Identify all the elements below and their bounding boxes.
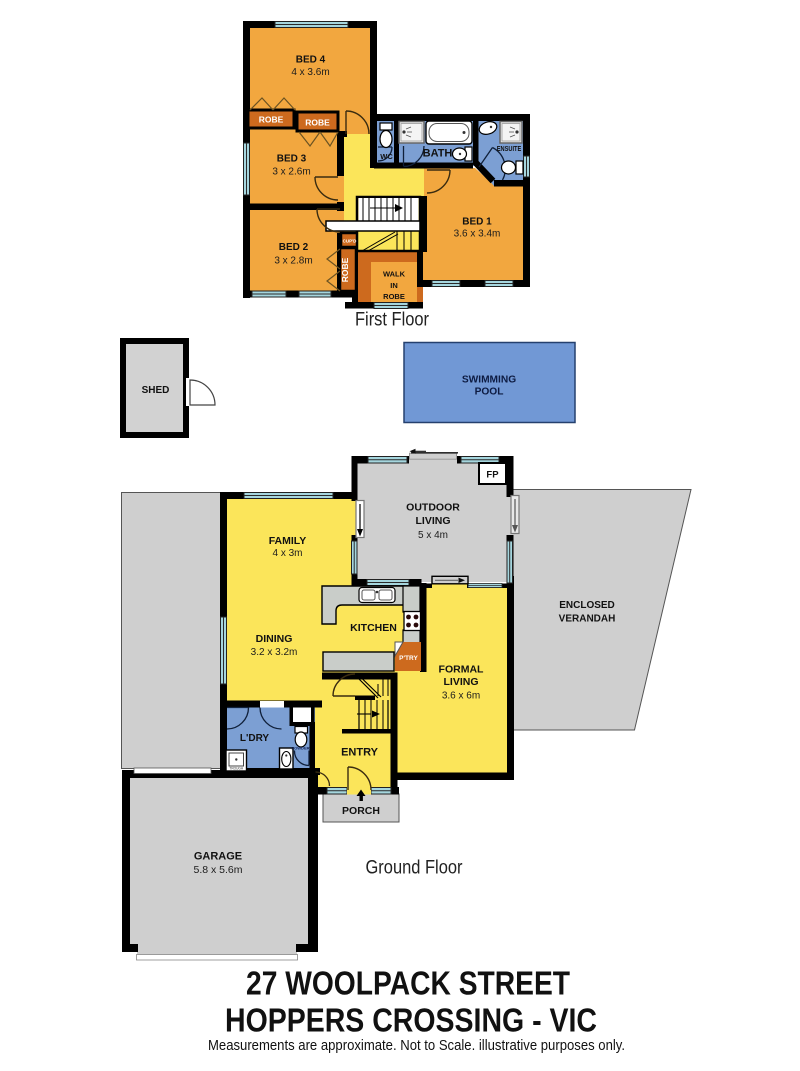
svg-text:ENTRY: ENTRY: [341, 747, 379, 759]
svg-text:FORMAL: FORMAL: [439, 664, 484, 676]
svg-text:BED 2: BED 2: [279, 242, 309, 253]
svg-text:ROBE: ROBE: [383, 292, 405, 301]
svg-text:ENSUITE: ENSUITE: [497, 146, 522, 153]
svg-text:3 x 2.6m: 3 x 2.6m: [272, 167, 310, 178]
svg-text:BED 3: BED 3: [277, 154, 307, 165]
svg-text:L'DRY: L'DRY: [240, 733, 270, 744]
svg-text:IN: IN: [390, 281, 398, 290]
svg-text:FP: FP: [486, 470, 499, 481]
svg-text:ROBE: ROBE: [305, 118, 330, 128]
svg-text:WC: WC: [380, 152, 393, 161]
svg-text:PORCH: PORCH: [342, 805, 380, 817]
svg-text:ENCLOSED: ENCLOSED: [559, 600, 615, 611]
svg-text:POOL: POOL: [475, 387, 504, 398]
svg-text:CUP'D: CUP'D: [343, 239, 358, 244]
svg-text:Measurements are approximate.: Measurements are approximate. Not to Sca…: [208, 1037, 625, 1054]
svg-text:WALK: WALK: [383, 270, 406, 279]
svg-text:KITCHEN: KITCHEN: [350, 622, 397, 634]
svg-text:ROBE: ROBE: [340, 257, 350, 282]
svg-text:DINING: DINING: [256, 633, 293, 645]
svg-text:4 x 3m: 4 x 3m: [272, 548, 302, 559]
svg-text:OUTDOOR: OUTDOOR: [406, 502, 460, 514]
svg-text:P'TRY: P'TRY: [399, 655, 418, 662]
svg-text:3.2 x 3.2m: 3.2 x 3.2m: [251, 647, 298, 658]
svg-text:5 x 4m: 5 x 4m: [418, 530, 448, 541]
svg-text:POWDER: POWDER: [292, 746, 310, 751]
svg-text:BED 1: BED 1: [462, 217, 492, 228]
svg-text:3.6 x 3.4m: 3.6 x 3.4m: [454, 229, 501, 240]
svg-text:VERANDAH: VERANDAH: [559, 614, 616, 625]
svg-text:ROBE: ROBE: [259, 115, 284, 125]
svg-text:First Floor: First Floor: [355, 310, 430, 331]
svg-text:BED 4: BED 4: [296, 55, 326, 66]
svg-text:TROUGH: TROUGH: [229, 767, 244, 771]
svg-text:4 x 3.6m: 4 x 3.6m: [291, 67, 329, 78]
svg-text:FAMILY: FAMILY: [269, 535, 307, 547]
svg-text:27 WOOLPACK STREET: 27 WOOLPACK STREET: [246, 965, 570, 1002]
svg-text:Ground Floor: Ground Floor: [366, 858, 464, 879]
svg-text:3 x 2.8m: 3 x 2.8m: [274, 256, 312, 267]
svg-text:SHED: SHED: [142, 385, 170, 396]
svg-text:5.8 x 5.6m: 5.8 x 5.6m: [193, 864, 242, 876]
svg-text:GARAGE: GARAGE: [194, 851, 242, 863]
svg-text:BATH: BATH: [423, 148, 453, 160]
svg-text:HOPPERS CROSSING - VIC: HOPPERS CROSSING - VIC: [225, 1002, 597, 1039]
svg-text:LIVING: LIVING: [443, 676, 478, 688]
svg-text:3.6 x 6m: 3.6 x 6m: [442, 691, 480, 702]
svg-text:LIVING: LIVING: [415, 515, 450, 527]
svg-text:SWIMMING: SWIMMING: [462, 375, 516, 386]
